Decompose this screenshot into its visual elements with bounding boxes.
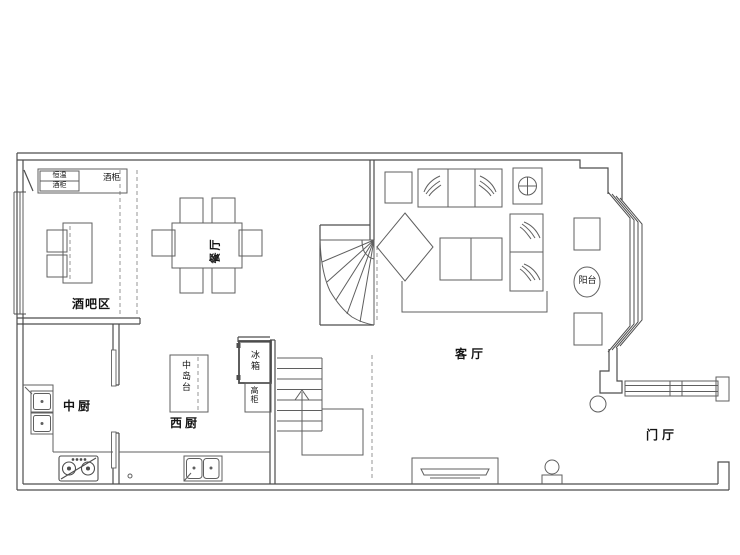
decor-stand (542, 460, 562, 484)
label-fridge: 冰箱 (249, 350, 258, 372)
floor-plan-drawing (0, 0, 740, 555)
dining-table (172, 223, 242, 268)
interior-walls (17, 160, 622, 484)
label-dining-room: 餐厅 (210, 232, 221, 264)
sofa-zone-line (402, 281, 547, 312)
side-table-left (385, 172, 412, 203)
double-sink-left (31, 391, 53, 434)
decor-circle (590, 396, 606, 412)
label-living-room: 客厅 (455, 348, 487, 360)
straight-staircase (277, 358, 363, 455)
label-bar-area: 酒吧区 (72, 298, 111, 310)
entry-bench (625, 377, 729, 401)
label-foyer: 门厅 (646, 429, 678, 441)
coffee-table (440, 238, 502, 280)
loveseat (510, 214, 543, 291)
label-chinese-kitchen: 中厨 (63, 400, 93, 412)
bar-stools (47, 230, 67, 277)
spiral-staircase (320, 240, 374, 325)
tv (421, 469, 489, 478)
counters (23, 385, 270, 452)
rug-diamond (377, 213, 433, 281)
dining-chairs (152, 198, 262, 293)
label-tall-cabinet: 高柜 (250, 386, 258, 404)
tv-cabinet (412, 458, 498, 484)
label-balcony: 阳台 (575, 277, 600, 286)
label-wine-cabinet: 酒柜 (103, 174, 120, 183)
label-western-kitchen: 西厨 (170, 417, 200, 429)
label-wine-fridge-line2: 酒柜 (43, 182, 76, 189)
double-sink-west (184, 456, 222, 481)
sofa (418, 169, 502, 207)
left-window (14, 192, 26, 314)
label-wine-fridge-line1: 恒温 (43, 172, 76, 179)
floor-plan: 恒温 酒柜 酒柜 酒吧区 餐厅 中厨 西厨 中岛台 冰箱 高柜 客厅 阳台 门厅 (0, 0, 740, 555)
label-kitchen-island: 中岛台 (180, 360, 189, 393)
bay-window (608, 192, 642, 352)
door-stop-dot (128, 474, 132, 478)
gas-stove (59, 456, 98, 481)
potted-plant-icon (519, 177, 537, 195)
sliding-door (112, 350, 117, 468)
